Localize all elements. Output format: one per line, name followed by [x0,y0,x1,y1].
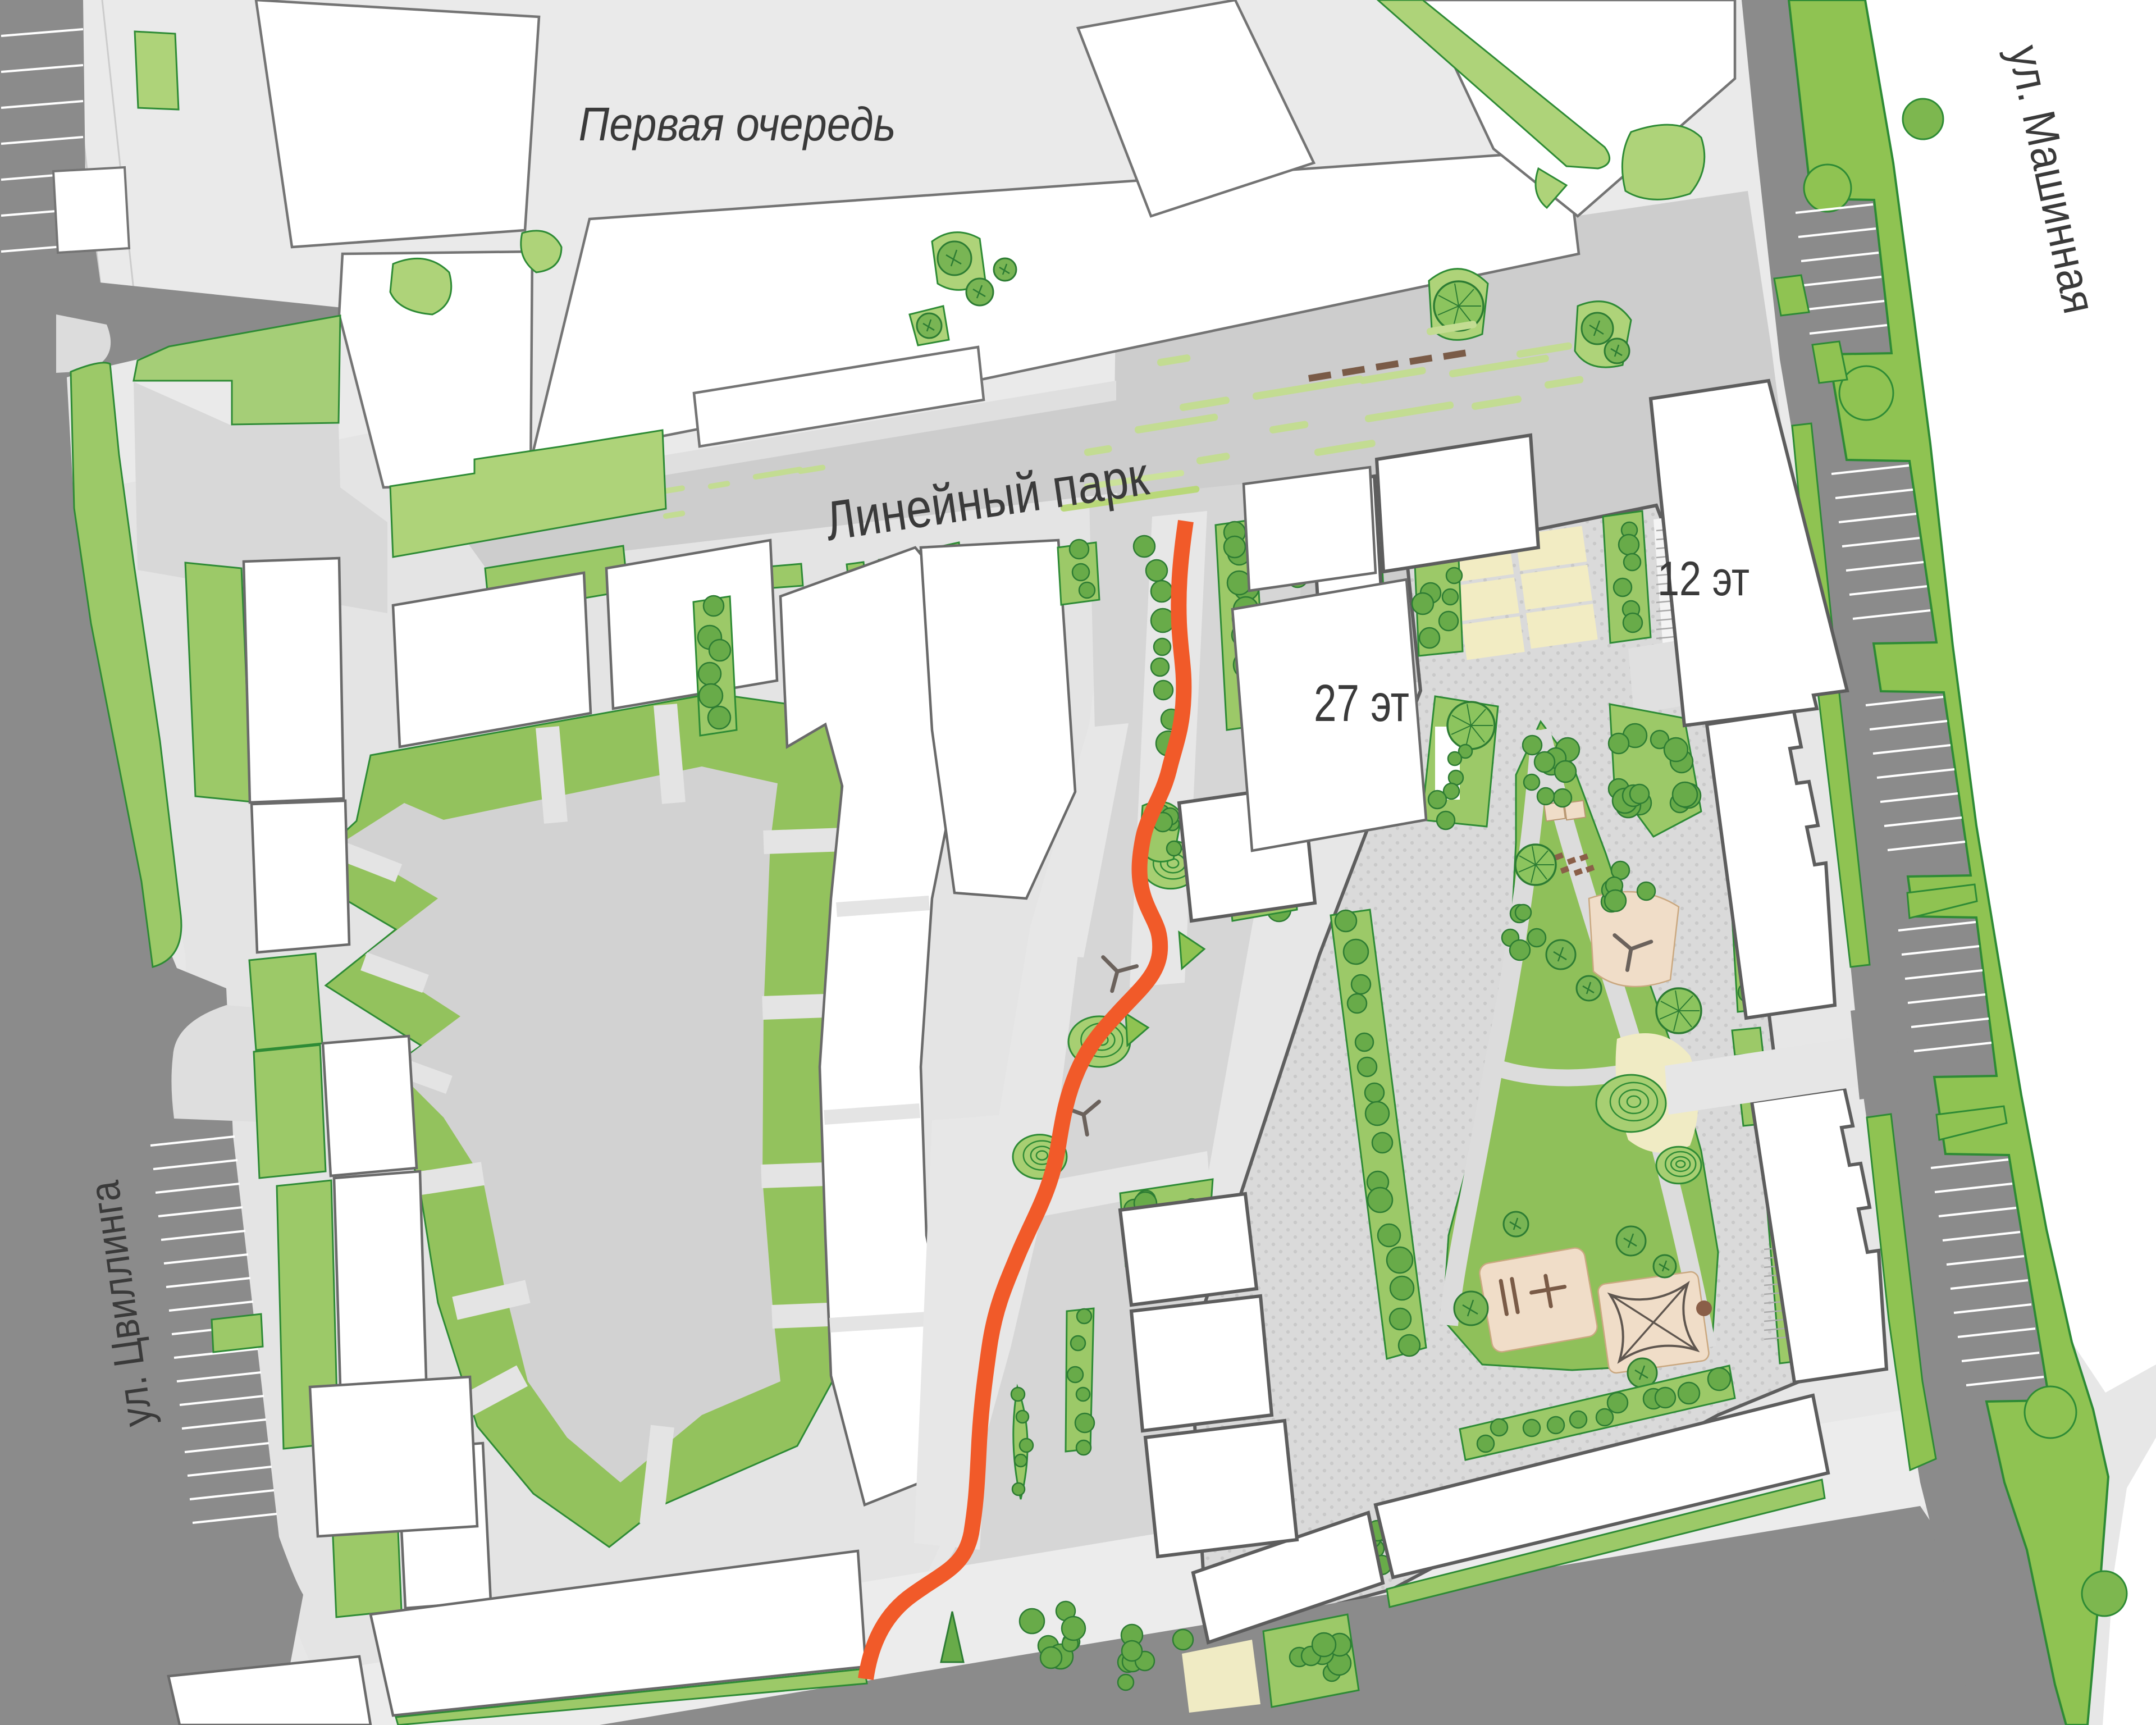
svg-text:Первая очередь: Первая очередь [579,98,896,150]
svg-text:12 эт: 12 эт [1657,552,1750,606]
svg-text:27 эт: 27 эт [1314,674,1409,732]
